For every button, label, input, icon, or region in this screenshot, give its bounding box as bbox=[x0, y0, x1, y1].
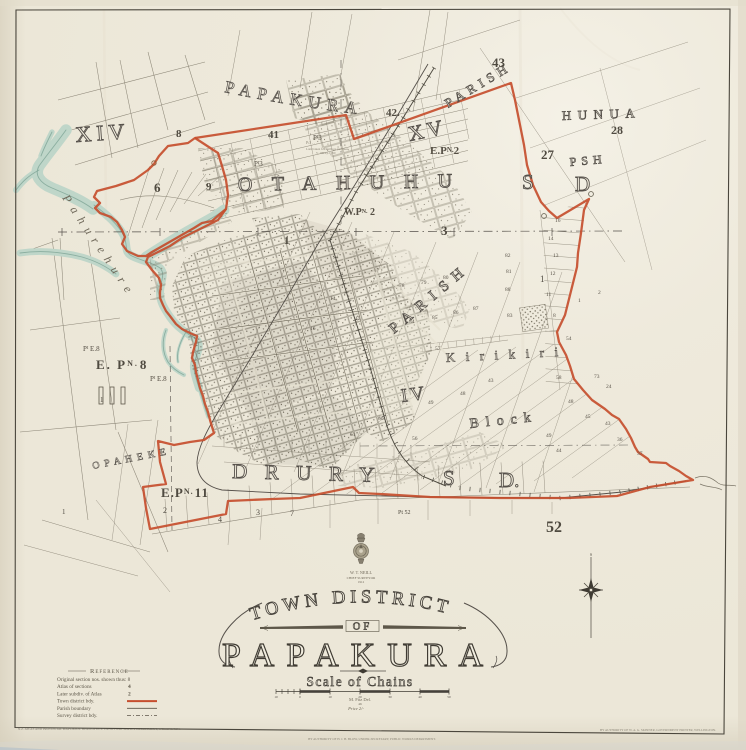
svg-text:S: S bbox=[522, 170, 534, 194]
svg-text:37: 37 bbox=[637, 451, 643, 457]
svg-text:42.: 42. bbox=[386, 107, 400, 119]
svg-text:79: 79 bbox=[421, 280, 427, 286]
svg-text:52: 52 bbox=[546, 519, 562, 536]
svg-text:43: 43 bbox=[488, 378, 494, 384]
svg-text:61: 61 bbox=[350, 432, 356, 438]
svg-text:80: 80 bbox=[443, 275, 449, 281]
svg-text:43: 43 bbox=[605, 421, 611, 427]
svg-text:83: 83 bbox=[507, 313, 513, 319]
svg-text:56: 56 bbox=[412, 436, 418, 442]
svg-text:57: 57 bbox=[435, 346, 441, 352]
svg-text:12: 12 bbox=[355, 316, 361, 322]
svg-text:XIV: XIV bbox=[75, 118, 131, 147]
svg-text:41: 41 bbox=[268, 129, 279, 141]
svg-text:3: 3 bbox=[256, 508, 260, 517]
svg-text:Town district bdy.: Town district bdy. bbox=[57, 699, 94, 705]
svg-text:48: 48 bbox=[568, 399, 574, 405]
svg-text:8: 8 bbox=[553, 313, 556, 319]
svg-text:10: 10 bbox=[274, 695, 278, 699]
svg-text:Pt E.8: Pt E.8 bbox=[83, 345, 100, 353]
svg-text:E. PN.8: E. PN.8 bbox=[96, 357, 148, 372]
svg-text:2: 2 bbox=[163, 506, 167, 515]
svg-text:4: 4 bbox=[128, 684, 131, 690]
svg-text:0: 0 bbox=[299, 695, 301, 699]
svg-text:DRURY: DRURY bbox=[232, 459, 392, 487]
svg-text:43: 43 bbox=[492, 55, 506, 70]
svg-text:58: 58 bbox=[556, 375, 562, 381]
svg-text:Later subdiv. of Atlas: Later subdiv. of Atlas bbox=[57, 690, 102, 697]
svg-text:8: 8 bbox=[176, 128, 182, 140]
svg-text:49: 49 bbox=[546, 433, 552, 439]
svg-text:S: S bbox=[590, 552, 592, 557]
svg-text:60: 60 bbox=[378, 416, 384, 422]
svg-text:73: 73 bbox=[594, 374, 600, 380]
svg-text:9: 9 bbox=[206, 181, 212, 193]
svg-text:Price 2/-: Price 2/- bbox=[347, 706, 364, 711]
svg-text:Survey district bdy.: Survey district bdy. bbox=[57, 713, 97, 719]
svg-text:W.PN. 2: W.PN. 2 bbox=[344, 207, 375, 218]
svg-text:40: 40 bbox=[418, 695, 422, 699]
svg-text:27: 27 bbox=[541, 147, 555, 162]
svg-text:54: 54 bbox=[566, 336, 572, 342]
svg-text:14: 14 bbox=[330, 296, 336, 302]
svg-text:1: 1 bbox=[284, 235, 290, 247]
svg-text:S: S bbox=[443, 466, 455, 490]
svg-text:44: 44 bbox=[556, 448, 562, 454]
svg-text:E.PN.2: E.PN.2 bbox=[430, 145, 460, 157]
svg-text:1: 1 bbox=[578, 298, 581, 304]
svg-text:24: 24 bbox=[606, 384, 612, 390]
svg-text:Pt E.8: Pt E.8 bbox=[150, 375, 167, 383]
svg-text:Atlas of sections: Atlas of sections bbox=[57, 683, 92, 690]
svg-text:2: 2 bbox=[128, 691, 131, 697]
svg-text:4: 4 bbox=[218, 515, 222, 524]
svg-text:Parish boundary: Parish boundary bbox=[57, 706, 91, 712]
svg-text:16: 16 bbox=[555, 218, 561, 224]
svg-text:86: 86 bbox=[453, 310, 459, 316]
svg-text:87: 87 bbox=[473, 306, 479, 312]
svg-text:OTAHUHU: OTAHUHU bbox=[238, 170, 472, 196]
svg-text:Scale of Chains: Scale of Chains bbox=[306, 674, 413, 689]
svg-text:D: D bbox=[575, 172, 590, 196]
svg-text:12: 12 bbox=[550, 271, 556, 277]
svg-text:82: 82 bbox=[505, 253, 511, 259]
svg-text:Pt3 . . .: Pt3 . . . bbox=[306, 140, 317, 145]
svg-text:1912: 1912 bbox=[358, 580, 365, 584]
svg-text:REFERENCE: REFERENCE bbox=[90, 668, 129, 675]
svg-text:36: 36 bbox=[617, 437, 623, 443]
svg-text:1: 1 bbox=[62, 508, 66, 516]
svg-text:7: 7 bbox=[290, 509, 294, 518]
svg-text:49: 49 bbox=[428, 400, 434, 406]
svg-text:2: 2 bbox=[598, 290, 601, 296]
svg-text:16: 16 bbox=[310, 326, 316, 332]
svg-text:Pt3: Pt3 bbox=[254, 160, 263, 168]
svg-text:V. 1894 p.1090: V. 1894 p.1090 bbox=[316, 151, 336, 155]
svg-text:1: 1 bbox=[540, 274, 545, 284]
svg-text:50: 50 bbox=[447, 695, 451, 699]
svg-text:85: 85 bbox=[432, 315, 438, 321]
svg-text:6: 6 bbox=[154, 180, 161, 195]
svg-text:PAPAKURA: PAPAKURA bbox=[222, 637, 495, 674]
svg-text:Pt 52: Pt 52 bbox=[398, 510, 411, 516]
svg-text:81: 81 bbox=[506, 269, 512, 275]
svg-text:HUNUA: HUNUA bbox=[562, 105, 642, 123]
svg-text:3: 3 bbox=[441, 223, 448, 238]
svg-text:30: 30 bbox=[388, 695, 392, 699]
svg-text:10: 10 bbox=[328, 695, 332, 699]
svg-text:IV: IV bbox=[400, 383, 429, 407]
svg-text:D.: D. bbox=[499, 468, 519, 492]
svg-text:14: 14 bbox=[548, 236, 554, 242]
svg-text:88: 88 bbox=[505, 287, 511, 293]
svg-text:13: 13 bbox=[553, 253, 559, 259]
svg-text:1: 1 bbox=[100, 396, 104, 404]
svg-text:28: 28 bbox=[611, 123, 623, 137]
svg-text:48: 48 bbox=[460, 391, 466, 397]
svg-text:OF: OF bbox=[353, 622, 372, 633]
svg-text:45: 45 bbox=[585, 414, 591, 420]
svg-text:84: 84 bbox=[409, 319, 415, 325]
svg-text:78: 78 bbox=[399, 283, 405, 289]
svg-text:11: 11 bbox=[546, 292, 552, 298]
svg-text:Original section nos. shown: Original section nos. shown thus: 8 bbox=[57, 677, 131, 683]
svg-text:W. T. NEILL: W. T. NEILL bbox=[350, 570, 372, 575]
